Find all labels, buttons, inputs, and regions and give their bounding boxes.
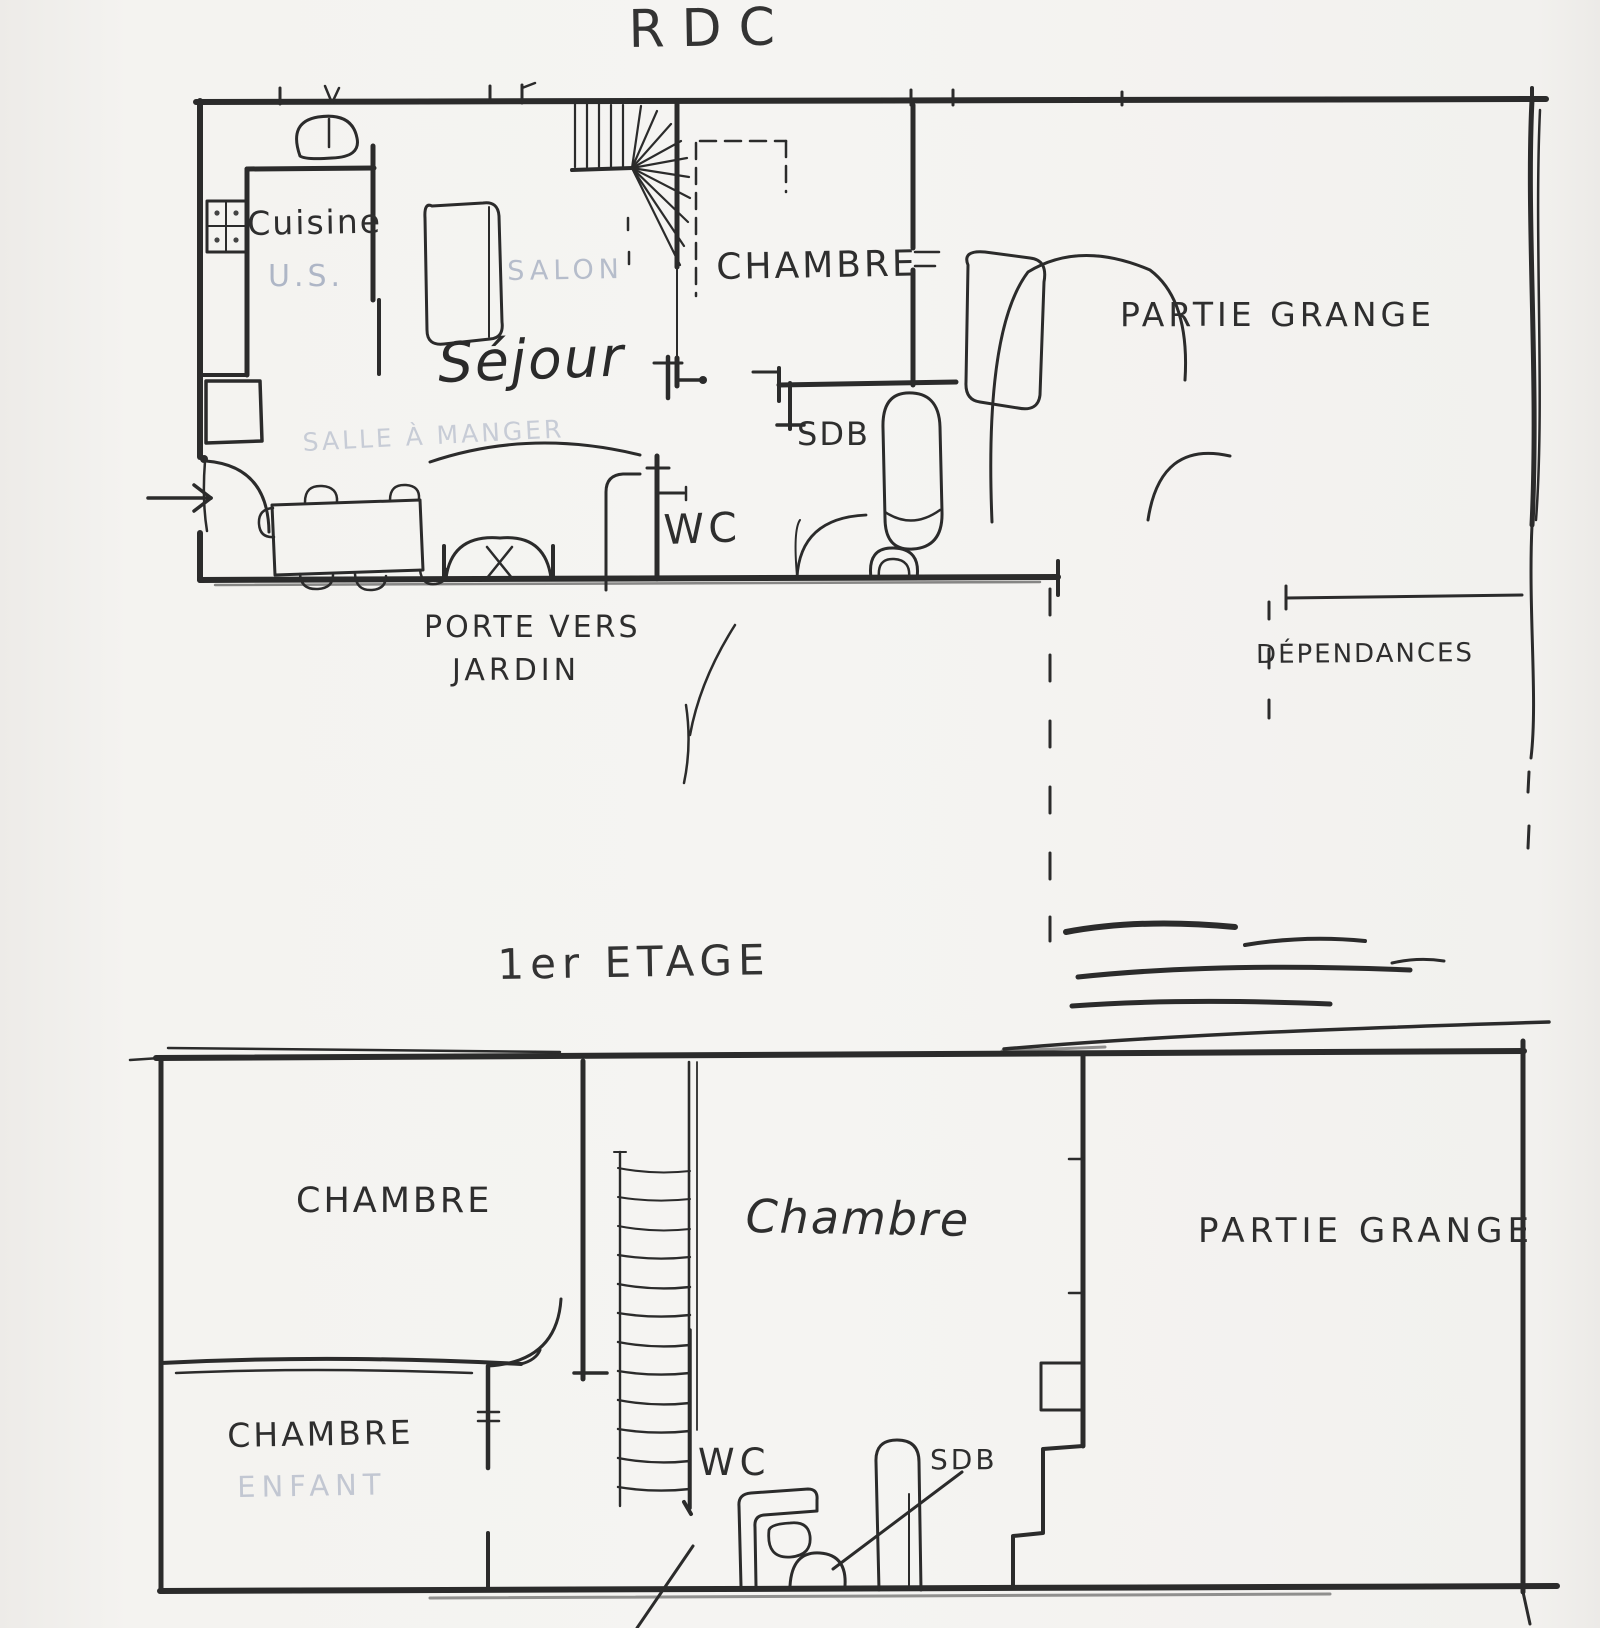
- etage-label-wc: WC: [698, 1444, 770, 1481]
- etage-label-chambre-top-left: CHAMBRE: [296, 1184, 492, 1219]
- rdc-label-cuisine: Cuisine: [247, 205, 382, 240]
- etage-floorplan: [130, 1022, 1557, 1628]
- etage-interior-walls: [161, 1056, 1084, 1587]
- rdc-label-sejour: Séjour: [437, 329, 626, 390]
- rdc-label-dependances: DÉPENDANCES: [1256, 640, 1474, 668]
- etage-stairs-icon: [614, 1062, 697, 1514]
- etage-label-chambre-center: Chambre: [745, 1193, 970, 1243]
- entrance-arrow-icon: [148, 485, 211, 511]
- kitchen-cabinet: [206, 381, 262, 443]
- stove-icon: [207, 201, 246, 252]
- etage-label-chambre-bottom-left: CHAMBRE: [227, 1416, 414, 1452]
- rdc-sdb-door-arc: [796, 515, 866, 578]
- etage-toilet-icon: [739, 1489, 845, 1586]
- rdc-interior-walls: [606, 101, 956, 590]
- sink-icon: [297, 116, 358, 158]
- etage-label-enfant: ENFANT: [237, 1470, 387, 1502]
- rdc-label-porte-vers: PORTE VERS: [424, 613, 641, 643]
- etage-title: 1er ETAGE: [497, 939, 771, 986]
- rdc-bathtub-icon: [883, 393, 942, 549]
- etage-outer-walls: [130, 1022, 1557, 1624]
- rdc-label-jardin: JARDIN: [452, 656, 580, 686]
- rdc-label-salon: SALON: [507, 256, 624, 285]
- scanned-sketch-sheet: RDC Cuisine U.S. SALON Séjour CHAMBRE SD…: [0, 0, 1600, 1628]
- etage-door-arc: [488, 1299, 561, 1366]
- etage-label-partie-grange: PARTIE GRANGE: [1198, 1214, 1534, 1248]
- rdc-label-wc: WC: [663, 507, 742, 551]
- floorplan-drawing: [0, 0, 1600, 1628]
- rdc-label-us: U.S.: [268, 262, 344, 292]
- etage-shower-icon: [876, 1440, 921, 1590]
- rdc-toilet-icon: [870, 548, 917, 578]
- rdc-title: RDC: [628, 1, 792, 56]
- etage-sdb-pointer-line: [833, 1472, 962, 1569]
- between-floors-smudges: [684, 625, 1444, 1006]
- rdc-dining-table-pencil: [259, 485, 447, 590]
- rdc-label-chambre: CHAMBRE: [716, 246, 918, 286]
- rdc-stairs-icon: [572, 104, 690, 265]
- rdc-label-partie-grange: PARTIE GRANGE: [1120, 298, 1435, 331]
- rdc-label-sdb: SDB: [797, 418, 870, 450]
- etage-label-sdb: SDB: [930, 1446, 998, 1474]
- rdc-outer-walls: [196, 88, 1546, 848]
- rdc-entrance: [148, 455, 269, 532]
- rdc-french-doors: [444, 538, 553, 579]
